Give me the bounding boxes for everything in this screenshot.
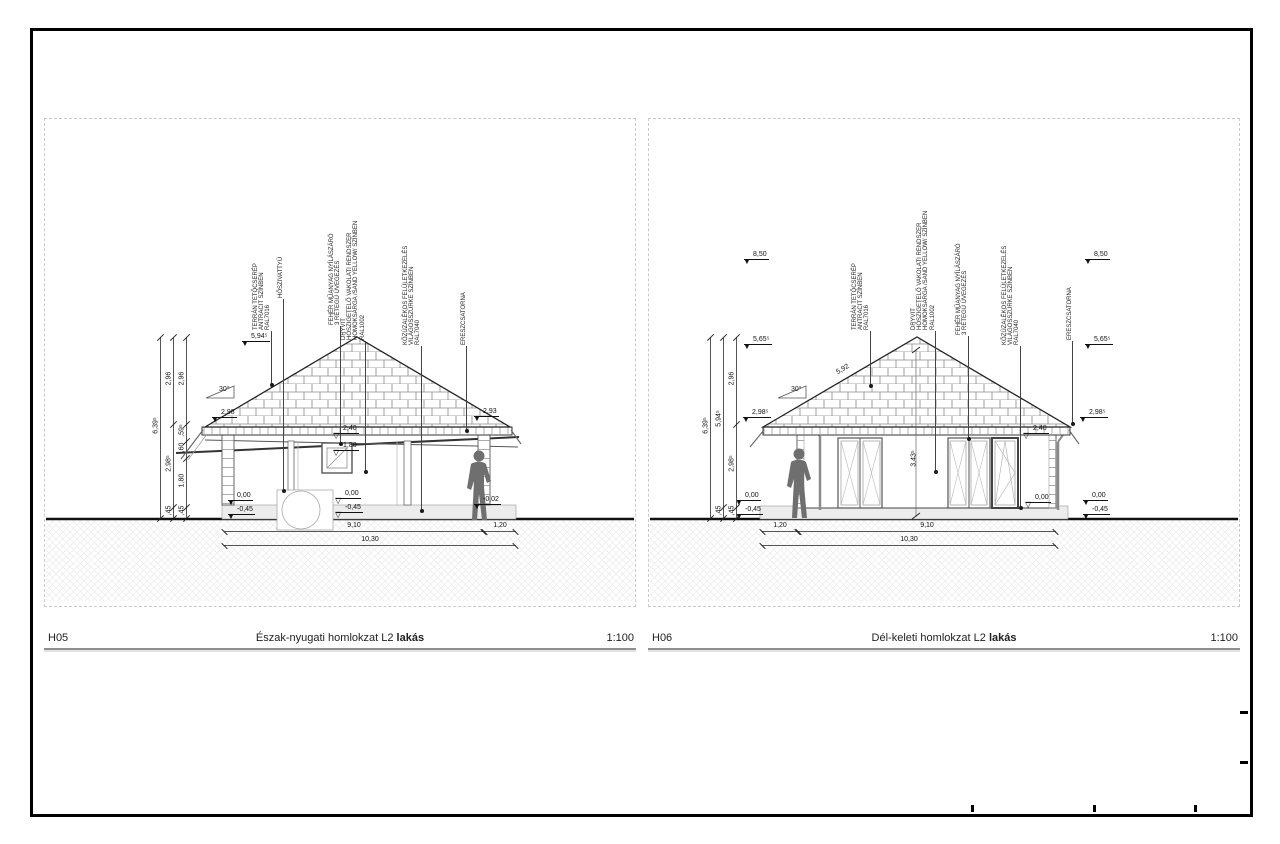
callout-label: TERRÁN TETŐCSERÉP ANTRACIT SZÍNBEN RAL70… bbox=[253, 160, 272, 330]
level-triangle-icon bbox=[1082, 513, 1090, 521]
level-triangle-icon bbox=[743, 258, 751, 266]
dimension-value: 2,98⁵ bbox=[166, 447, 173, 481]
dimension-value: 2,96 bbox=[166, 362, 173, 396]
dimension-value: 2,98⁵ bbox=[729, 447, 736, 481]
level-triangle-icon bbox=[227, 513, 235, 521]
level-triangle-icon bbox=[1079, 416, 1087, 424]
level-marker: 5,94⁵ bbox=[242, 332, 270, 342]
wall-height-dimension: 3,43⁵ bbox=[911, 442, 918, 476]
border-tick bbox=[971, 805, 974, 812]
leader-dot bbox=[420, 509, 424, 513]
level-triangle-icon bbox=[333, 449, 339, 457]
level-marker: 2,98⁵ bbox=[1080, 408, 1108, 418]
dimension-value: ,45 bbox=[179, 494, 186, 528]
ground-hatch bbox=[650, 520, 1238, 601]
level-marker: -0,45 bbox=[336, 503, 363, 513]
level-triangle-icon bbox=[335, 511, 341, 519]
drawing-title-text: Dél-keleti homlokzat L2 bbox=[872, 632, 986, 644]
drawing-scale: 1:100 bbox=[1144, 632, 1238, 644]
leader-line bbox=[870, 331, 871, 386]
leader-dot bbox=[1019, 506, 1023, 510]
dimension-value: 6,39⁵ bbox=[703, 409, 710, 443]
dimension-value: ,60 bbox=[179, 431, 186, 465]
callout-label: FEHÉR MŰANYAG NYÍLÁSZÁRÓ 3 RÉTEGŰ ÜVEGEZ… bbox=[329, 155, 341, 325]
level-triangle-icon bbox=[1084, 258, 1092, 266]
callout-label: ERESZCSATORNA bbox=[1067, 170, 1073, 340]
leader-dot bbox=[270, 383, 274, 387]
callout-label: FEHÉR MŰANYAG NYÍLÁSZÁRÓ 3 RÉTEGŰ ÜVEGEZ… bbox=[956, 165, 968, 335]
dimension-value: 5,94⁵ bbox=[716, 402, 723, 436]
level-marker: 2,93 bbox=[474, 407, 499, 417]
dimension-horizontal: 9,10 bbox=[224, 531, 484, 532]
dimension-horizontal: 9,10 bbox=[798, 531, 1056, 532]
leader-dot bbox=[282, 489, 286, 493]
leader-line bbox=[1072, 341, 1073, 423]
french-door-2 bbox=[948, 438, 990, 508]
leader-line bbox=[466, 346, 467, 430]
callout-label: DRYVIT HŐSZIGETELŐ VAKOLATI RENDSZER HOM… bbox=[911, 160, 936, 330]
plinth-slab bbox=[222, 505, 516, 519]
dimension-chain bbox=[186, 337, 187, 518]
level-marker: -0,45 bbox=[736, 505, 763, 515]
level-triangle-icon bbox=[1023, 432, 1029, 440]
level-marker: 0,00 bbox=[1083, 491, 1108, 501]
dimension-value: ,45 bbox=[166, 494, 173, 528]
dimension-chain bbox=[736, 337, 737, 518]
leader-dot bbox=[934, 470, 938, 474]
leader-line bbox=[283, 299, 284, 491]
level-marker: 5,65⁵ bbox=[744, 335, 772, 345]
level-marker: 0,00 bbox=[1026, 493, 1051, 503]
title-rule bbox=[648, 648, 1240, 650]
dimension-value: 2,96 bbox=[729, 362, 736, 396]
dimension-value: 6,39⁵ bbox=[153, 409, 160, 443]
roof bbox=[763, 337, 1070, 427]
callout-label: KŐZÚZALÉKOS FELÜLETKEZELÉS VILÁGOSSZÜRKE… bbox=[1002, 175, 1021, 345]
level-triangle-icon bbox=[241, 340, 249, 348]
level-triangle-icon bbox=[473, 415, 481, 423]
dimension-value: 1,80 bbox=[179, 464, 186, 498]
dimension-horizontal: 10,30 bbox=[224, 545, 516, 546]
level-marker: 2,40 bbox=[1024, 424, 1049, 434]
level-marker: 0,00 bbox=[228, 491, 253, 501]
dimension-value: ,45 bbox=[716, 494, 723, 528]
level-marker: -0,45 bbox=[228, 505, 255, 515]
callout-label: DRYVIT HŐSZIGETELŐ VAKOLATI RENDSZER HOM… bbox=[341, 170, 366, 340]
terrace-beam-2 bbox=[205, 440, 518, 447]
callout-label: ERESZCSATORNA bbox=[461, 175, 467, 345]
dimension-chain bbox=[723, 337, 724, 518]
level-marker: 0,00 bbox=[736, 491, 761, 501]
level-marker: 2,98⁵ bbox=[743, 408, 771, 418]
level-triangle-icon bbox=[743, 343, 751, 351]
roof-pitch-label: 30° bbox=[219, 386, 230, 393]
leader-dot bbox=[869, 384, 873, 388]
dimension-chain bbox=[160, 337, 161, 518]
title-rule bbox=[44, 648, 636, 650]
level-marker: 0,00 bbox=[336, 489, 361, 499]
roof bbox=[205, 337, 510, 427]
ground-hatch bbox=[46, 520, 634, 601]
border-tick bbox=[1194, 805, 1197, 812]
drawing-title-suffix: lakás bbox=[989, 632, 1017, 644]
level-marker: 8,50 bbox=[1085, 250, 1110, 260]
leader-line bbox=[421, 346, 422, 510]
leader-dot bbox=[364, 470, 368, 474]
level-triangle-icon bbox=[473, 503, 481, 511]
callout-label: KŐZÚZALÉKOS FELÜLETKEZELÉS VILÁGOSSZÜRKE… bbox=[403, 175, 422, 345]
border-tick bbox=[1240, 711, 1248, 714]
drawing-scale: 1:100 bbox=[540, 632, 634, 644]
leader-line bbox=[365, 341, 366, 471]
dimension-horizontal: 10,30 bbox=[762, 545, 1056, 546]
dimension-chain bbox=[710, 337, 711, 518]
level-marker: -0,02 bbox=[474, 495, 501, 505]
drawing-title-text: Észak-nyugati homlokzat L2 bbox=[256, 632, 394, 644]
callout-label: TERRÁN TETŐCSERÉP ANTRACIT SZÍNBEN RAL70… bbox=[852, 160, 871, 330]
level-triangle-icon bbox=[1025, 501, 1031, 509]
level-marker: 1,80 bbox=[334, 441, 359, 451]
callout-label: HŐSZIVATTYÚ bbox=[278, 128, 284, 298]
border-tick bbox=[1093, 805, 1096, 812]
level-triangle-icon bbox=[742, 416, 750, 424]
level-marker: 5,65⁵ bbox=[1085, 335, 1113, 345]
level-triangle-icon bbox=[211, 416, 219, 424]
drawing-title-suffix: lakás bbox=[397, 632, 425, 644]
leader-dot bbox=[465, 429, 469, 433]
leader-line bbox=[935, 331, 936, 471]
level-marker: 2,98 bbox=[212, 408, 237, 418]
level-marker: -0,45 bbox=[1083, 505, 1110, 515]
dimension-value: ,45 bbox=[729, 494, 736, 528]
leader-line bbox=[1020, 346, 1021, 507]
level-marker: 8,50 bbox=[744, 250, 769, 260]
dimension-chain bbox=[173, 337, 174, 518]
leader-line bbox=[271, 331, 272, 385]
dimension-horizontal: 1,20 bbox=[762, 531, 798, 532]
leader-line bbox=[968, 336, 969, 438]
level-triangle-icon bbox=[333, 432, 339, 440]
level-triangle-icon bbox=[1084, 343, 1092, 351]
drawing-sheet: TERRÁN TETŐCSERÉP ANTRACIT SZÍNBEN RAL70… bbox=[0, 0, 1280, 844]
tilt-turn-window bbox=[992, 438, 1018, 508]
dimension-horizontal: 1,20 bbox=[484, 531, 516, 532]
border-tick bbox=[1240, 761, 1248, 764]
level-marker: 2,40 bbox=[334, 424, 359, 434]
leader-dot bbox=[967, 437, 971, 441]
french-door-1 bbox=[838, 438, 882, 508]
leader-dot bbox=[1071, 422, 1075, 426]
dimension-value: 2,96 bbox=[179, 362, 186, 396]
roof-pitch-label: 30° bbox=[791, 386, 802, 393]
